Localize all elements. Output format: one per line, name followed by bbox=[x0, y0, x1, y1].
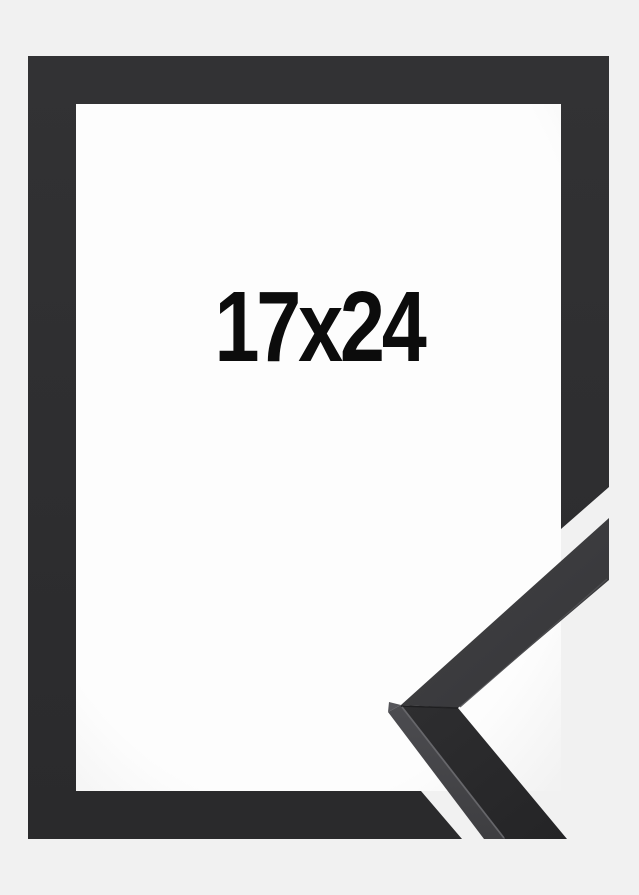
frame-inner-mount-area bbox=[76, 104, 561, 791]
product-image: 17x24 bbox=[0, 0, 639, 895]
picture-frame-graphic: 17x24 bbox=[0, 0, 639, 895]
frame-size-label: 17x24 bbox=[214, 272, 427, 383]
